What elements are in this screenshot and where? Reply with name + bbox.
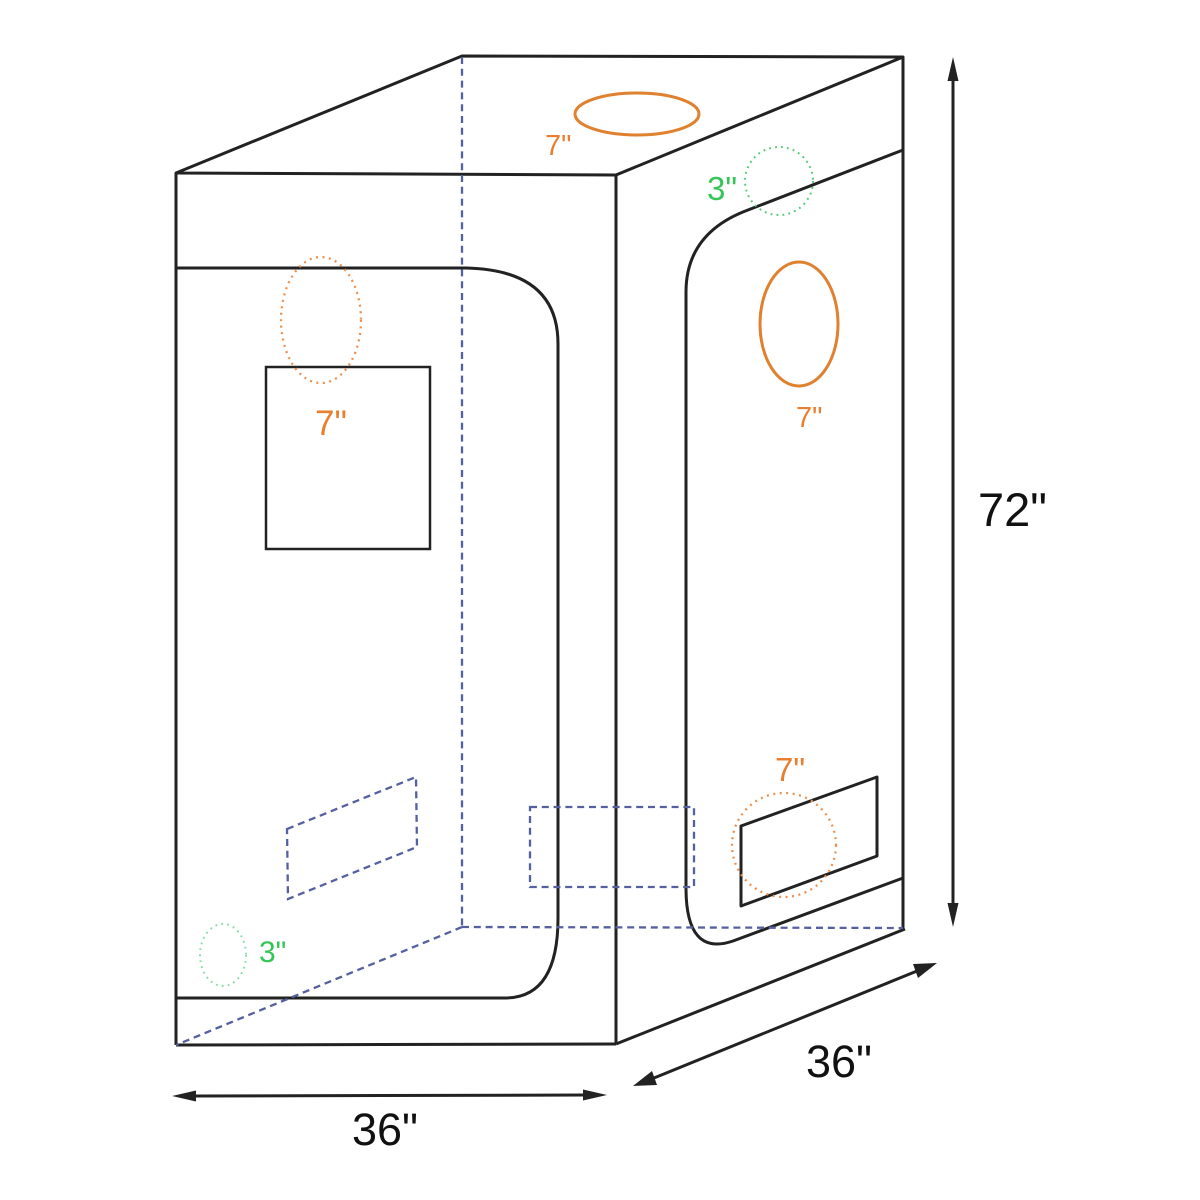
svg-text:72": 72" (978, 483, 1047, 536)
svg-text:3": 3" (259, 936, 286, 969)
svg-text:36": 36" (352, 1104, 418, 1155)
svg-text:7": 7" (775, 751, 805, 788)
svg-text:36": 36" (806, 1036, 872, 1087)
svg-text:3": 3" (707, 170, 737, 207)
svg-text:7": 7" (796, 402, 822, 434)
svg-text:7": 7" (315, 404, 347, 443)
svg-text:7": 7" (545, 130, 571, 162)
